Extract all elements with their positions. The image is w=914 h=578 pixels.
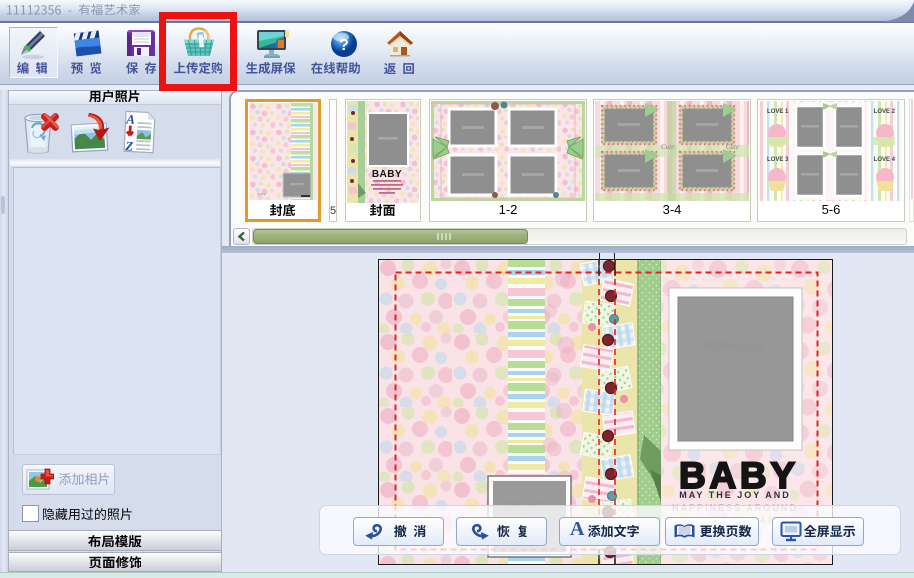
svg-text:BABY: BABY	[372, 169, 402, 180]
svg-text:LOVE 2: LOVE 2	[874, 109, 896, 115]
svg-text:?: ?	[339, 37, 349, 54]
svg-text:LOVE 4: LOVE 4	[874, 157, 896, 163]
svg-text:Mary: Mary	[257, 191, 266, 196]
svg-text:LOVE 1: LOVE 1	[767, 109, 789, 115]
svg-text:Z: Z	[124, 138, 134, 153]
svg-text:Cute: Cute	[726, 143, 739, 151]
svg-text:A: A	[125, 111, 136, 127]
svg-text:Cute: Cute	[661, 143, 674, 151]
svg-text:MAY THE JOY AND: MAY THE JOY AND	[679, 490, 791, 500]
svg-text:LOVE 3: LOVE 3	[767, 157, 789, 163]
